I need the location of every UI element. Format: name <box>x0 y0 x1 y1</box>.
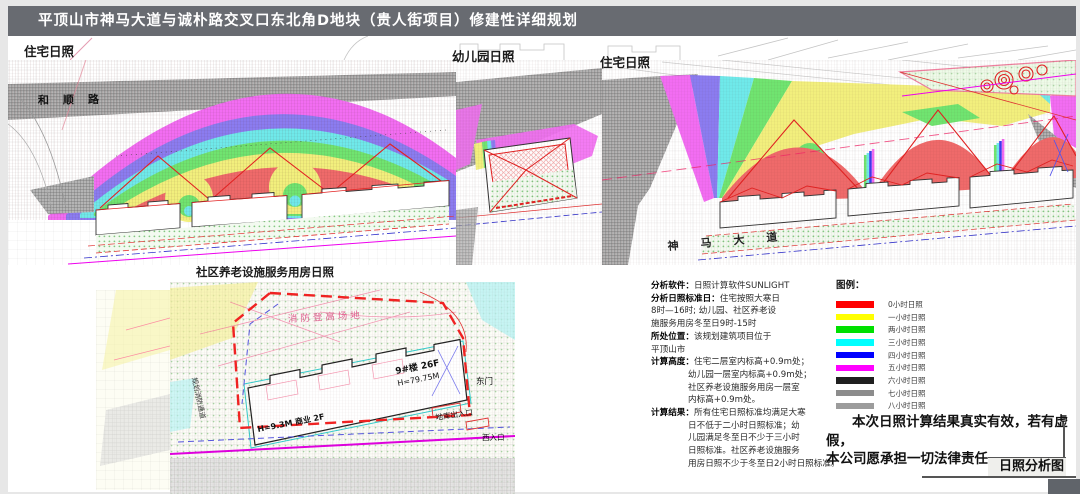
legend-label: 一小时日照 <box>874 312 926 323</box>
west-entry-label: 西入口 <box>482 433 505 442</box>
legend-item: 八小时日照 <box>836 400 926 413</box>
legend-swatch <box>836 377 874 384</box>
analysis-line-label: 分析软件： <box>651 281 694 291</box>
east-gate-label: 东门 <box>476 376 493 387</box>
survey-backdrop <box>8 36 1076 60</box>
legend-swatch <box>836 390 874 397</box>
analysis-line-text: 该规划建筑项目位于 <box>694 332 771 342</box>
legend-item: 五小时日照 <box>836 361 926 374</box>
legend: 图例： 0小时日照 一小时日照 两小时日照 三小时日照 四小时日照 五小时日照 <box>836 277 926 412</box>
page-title: 平顶山市神马大道与诚朴路交叉口东北角D地块（贵人街项目）修建性详细规划 <box>8 6 1076 36</box>
panel-label-residential-right: 住宅日照 <box>600 52 650 71</box>
legend-swatch <box>836 326 874 333</box>
analysis-line: 分析软件：日照计算软件SUNLIGHT <box>651 280 856 293</box>
drawing-name-label: 日照分析图 <box>988 457 1066 476</box>
legend-label: 三小时日照 <box>874 337 926 348</box>
analysis-line-text: 施服务用房冬至日9时-15时 <box>651 319 756 329</box>
legend-swatch <box>836 403 874 410</box>
panel-label-residential-left: 住宅日照 <box>24 41 74 60</box>
legend-item: 三小时日照 <box>836 336 926 349</box>
analysis-line-text: 日照标准。社区养老设施服务 <box>688 446 800 456</box>
legend-item: 两小时日照 <box>836 323 926 336</box>
legend-label: 七小时日照 <box>874 388 926 399</box>
detail-sunlight-map: 消防登高场地 9#楼 26F H=79.75M H=9.3M 商业 2F 规划消… <box>170 282 515 494</box>
legend-items: 0小时日照 一小时日照 两小时日照 三小时日照 四小时日照 五小时日照 六小时日… <box>836 298 926 412</box>
panel-label-elder-care: 社区养老设施服务用房日照 <box>196 264 334 280</box>
analysis-line-text: 平顶山市 <box>651 345 685 355</box>
legend-item: 六小时日照 <box>836 374 926 387</box>
analysis-line-label: 计算高度： <box>651 357 694 367</box>
legend-swatch <box>836 339 874 346</box>
legend-item: 0小时日照 <box>836 298 926 311</box>
legend-label: 六小时日照 <box>874 375 926 386</box>
legend-item: 四小时日照 <box>836 349 926 362</box>
legend-label: 0小时日照 <box>874 299 923 310</box>
analysis-line-text: 8时—16时; 幼儿园、社区养老设 <box>651 306 776 316</box>
analysis-line: 分析日照标准日：住宅按照大寒日 <box>651 293 856 306</box>
panel-label-kindergarten: 幼儿园日照 <box>452 46 515 65</box>
analysis-line-text: 日照计算软件SUNLIGHT <box>694 281 789 291</box>
legend-label: 五小时日照 <box>874 362 926 373</box>
analysis-line-text: 内标高+0.9m处。 <box>688 395 760 405</box>
analysis-line-text: 幼儿园一层室内标高+0.9m处； <box>688 370 812 380</box>
analysis-line: 幼儿园一层室内标高+0.9m处； <box>651 369 856 382</box>
analysis-line-text: 日不低于二小时日照标准；幼 <box>688 421 800 431</box>
left-sunlight-map: 和顺路 <box>8 60 456 265</box>
title-block-underline <box>922 476 1076 478</box>
analysis-line-text: 所有住宅日照标准均满足大寒 <box>694 408 806 418</box>
legend-swatch <box>836 314 874 321</box>
analysis-line-text: 住宅二层室内标高+0.9m处； <box>694 357 809 367</box>
legend-swatch <box>836 365 874 372</box>
analysis-line-label: 分析日照标准日： <box>651 294 720 304</box>
analysis-line: 社区养老设施服务用房一层室 <box>651 382 856 395</box>
analysis-line: 所处位置：该规划建筑项目位于 <box>651 331 856 344</box>
legend-label: 两小时日照 <box>874 324 926 335</box>
detail-map-margin <box>96 290 170 490</box>
legend-swatch <box>836 301 874 308</box>
statement-line1: 本次日照计算结果真实有效，若有虚假， <box>826 413 1080 450</box>
legend-label: 八小时日照 <box>874 400 926 411</box>
analysis-line-text: 社区养老设施服务用房一层室 <box>688 383 800 393</box>
right-sunlight-map: 神马大道 <box>602 60 1076 265</box>
title-block-vline <box>1063 424 1065 458</box>
analysis-line: 内标高+0.9m处。 <box>651 394 856 407</box>
analysis-line: 计算高度：住宅二层室内标高+0.9m处； <box>651 356 856 369</box>
analysis-line-text: 住宅按照大寒日 <box>720 294 780 304</box>
analysis-line: 施服务用房冬至日9时-15时 <box>651 318 856 331</box>
analysis-line-text: 儿园满足冬至日不少于三小时 <box>688 433 800 443</box>
kindergarten-sunlight-map <box>456 60 602 265</box>
analysis-line: 平顶山市 <box>651 344 856 357</box>
analysis-line-label: 所处位置： <box>651 332 694 342</box>
analysis-line-label: 计算结果： <box>651 408 694 418</box>
analysis-line-text: 用房日照不少于冬至日2小时日照标准。 <box>688 459 840 469</box>
legend-item: 一小时日照 <box>836 311 926 324</box>
legend-title: 图例： <box>836 277 926 291</box>
legend-label: 四小时日照 <box>874 350 926 361</box>
legend-item: 七小时日照 <box>836 387 926 400</box>
street-label-heshun: 和顺路 <box>38 92 113 107</box>
analysis-line: 8时—16时; 幼儿园、社区养老设 <box>651 305 856 318</box>
sunlight-analysis-sheet: 和顺路 <box>0 0 1080 494</box>
legend-swatch <box>836 352 874 359</box>
corner-dark-block <box>1048 479 1080 494</box>
